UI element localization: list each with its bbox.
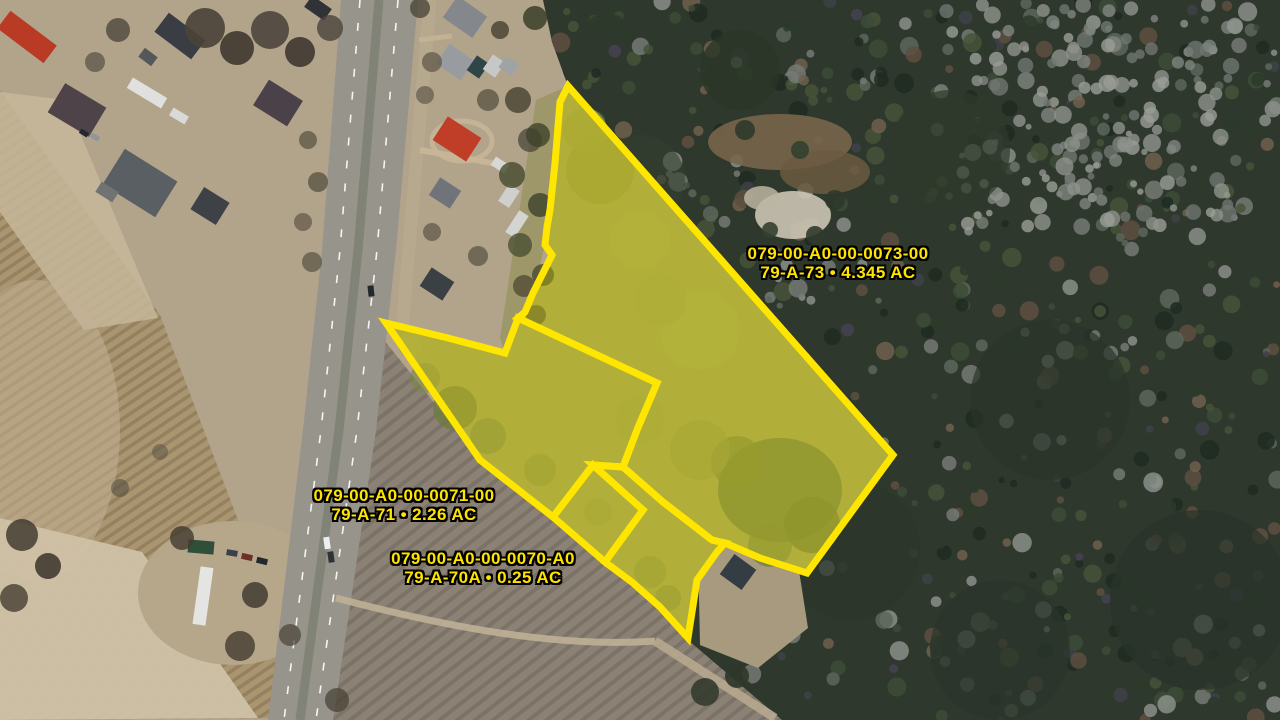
- parcel-summary: 79-A-70A • 0.25 AC: [391, 568, 575, 587]
- aerial-parcel-map: 079-00-A0-00-0073-00 79-A-73 • 4.345 AC …: [0, 0, 1280, 720]
- map-canvas: [0, 0, 1280, 720]
- parcel-apn: 079-00-A0-00-0070-A0: [391, 549, 575, 568]
- parcel-summary: 79-A-73 • 4.345 AC: [748, 263, 929, 282]
- parcel-apn: 079-00-A0-00-0073-00: [748, 244, 929, 263]
- parcel-apn: 079-00-A0-00-0071-00: [314, 486, 495, 505]
- parcel-label-0071: 079-00-A0-00-0071-00 79-A-71 • 2.26 AC: [314, 486, 495, 524]
- parcel-label-0070A: 079-00-A0-00-0070-A0 79-A-70A • 0.25 AC: [391, 549, 575, 587]
- parcel-summary: 79-A-71 • 2.26 AC: [314, 505, 495, 524]
- parcel-label-0073: 079-00-A0-00-0073-00 79-A-73 • 4.345 AC: [748, 244, 929, 282]
